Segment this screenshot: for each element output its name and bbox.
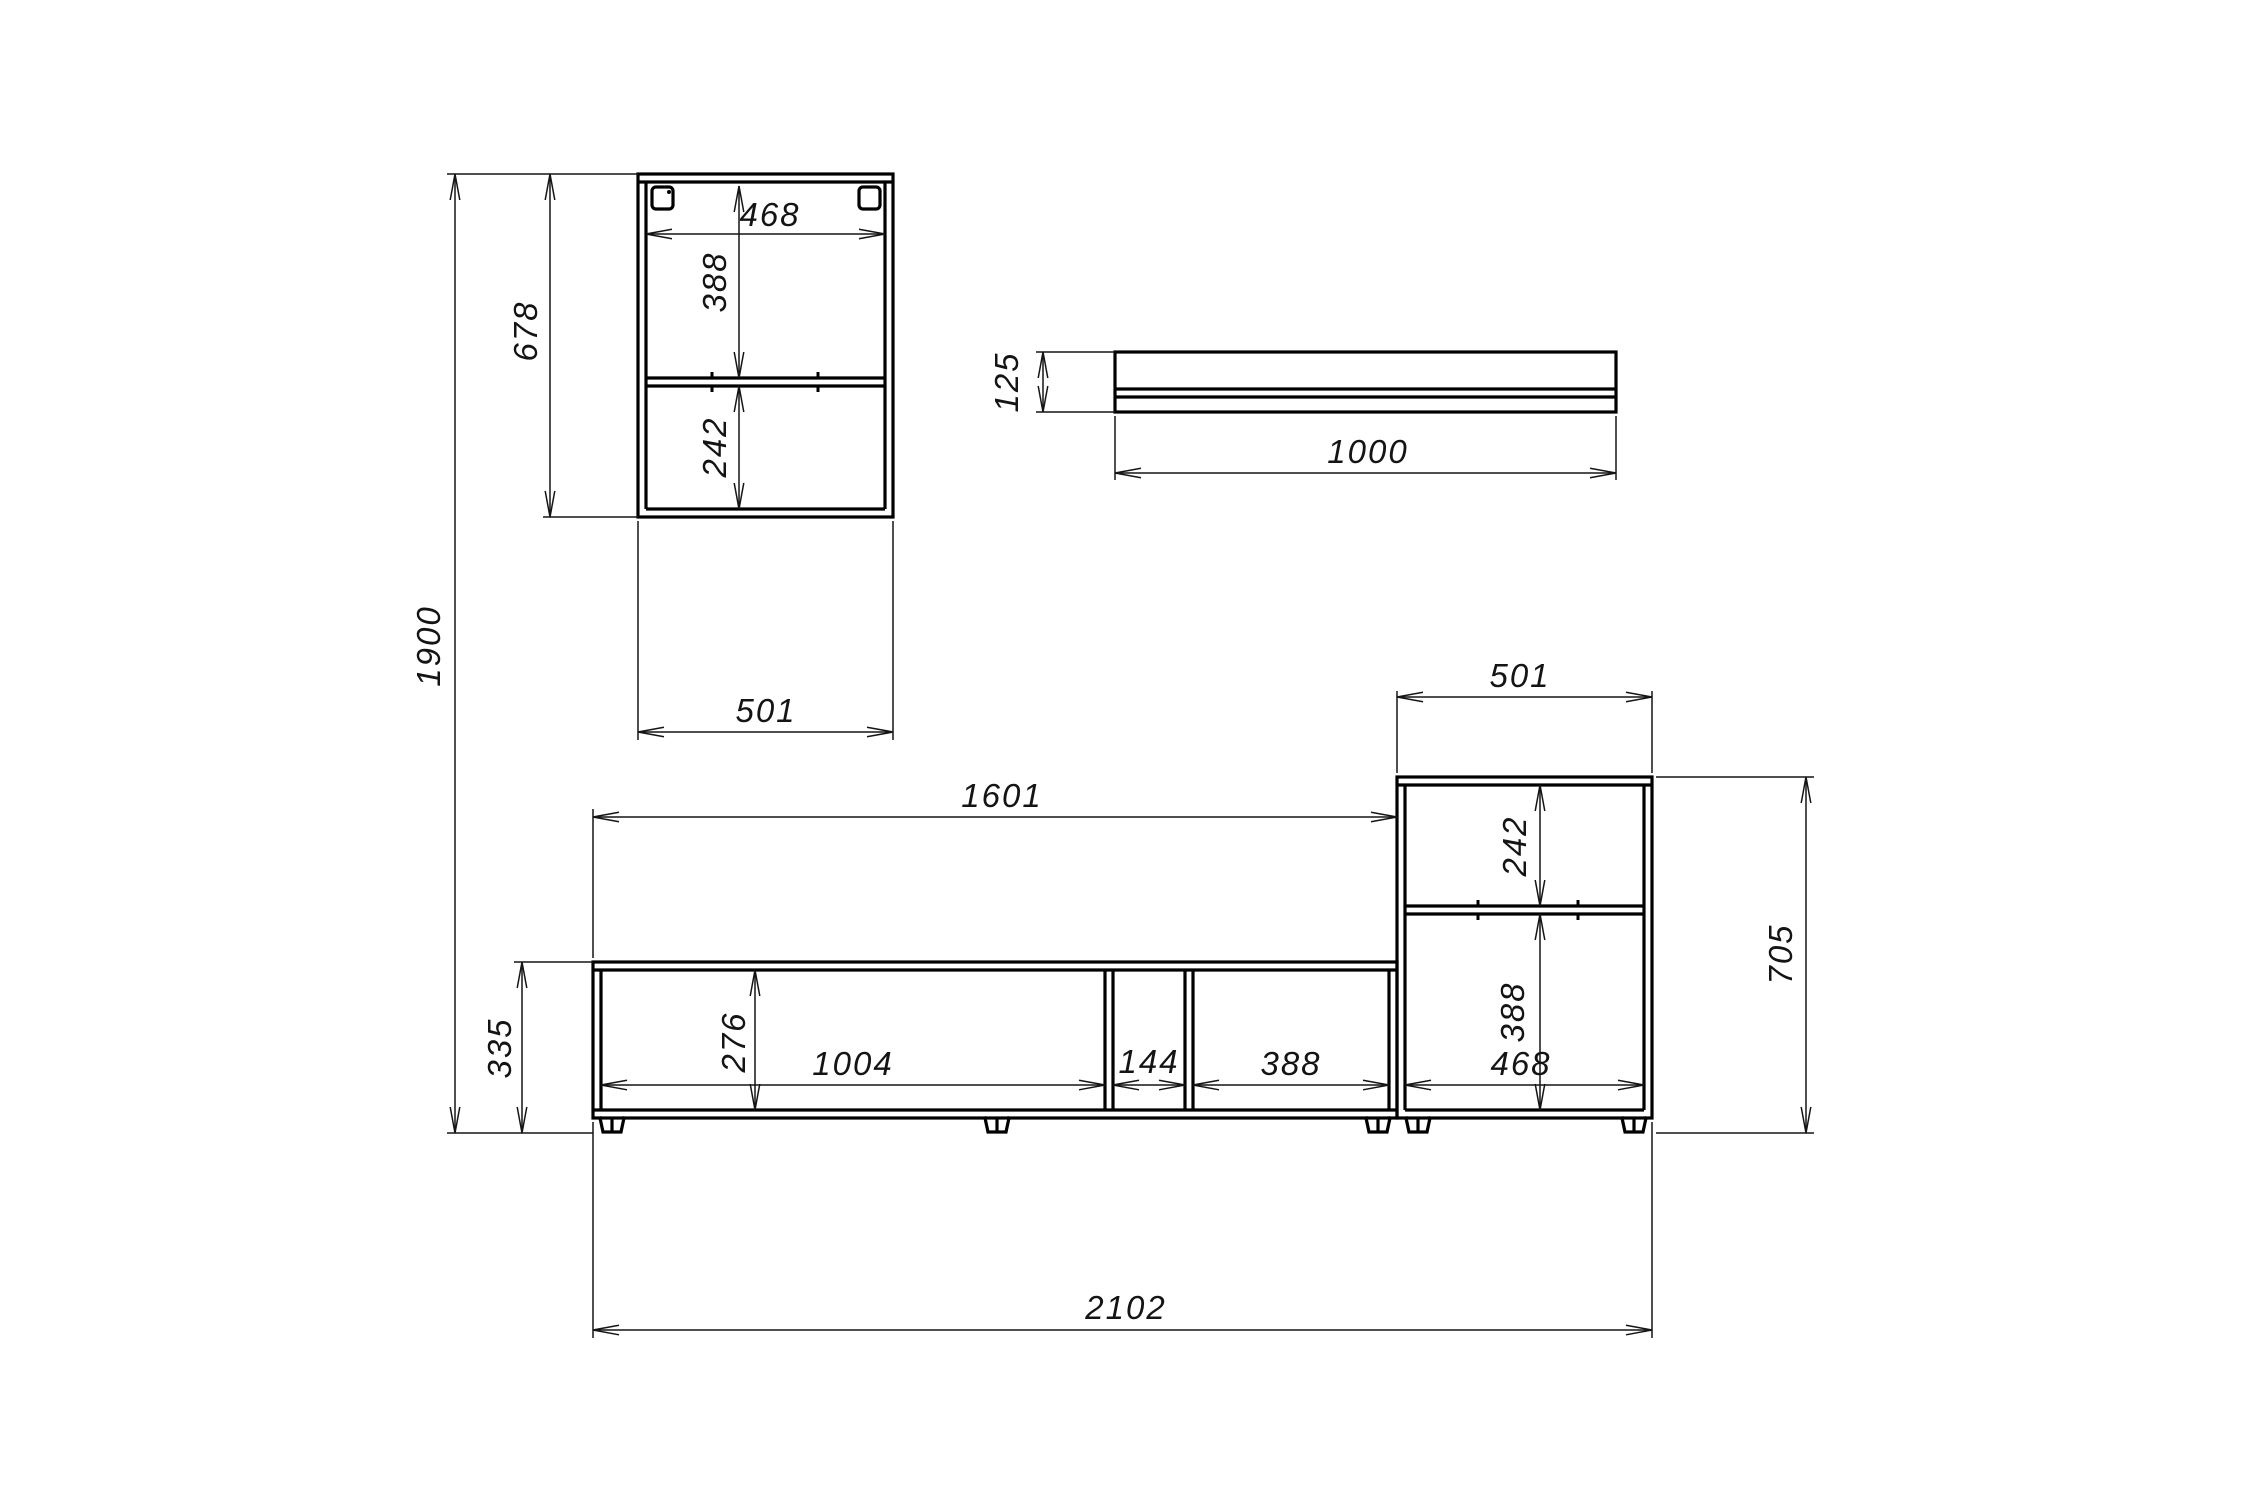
- dim-label-wall-cabinet-width: 501: [735, 692, 796, 729]
- extension-lines: [447, 174, 1814, 1338]
- dim-label-bench-inner-height: 276: [715, 1011, 752, 1073]
- dim-label-bench-compartment-middle: 144: [1118, 1043, 1179, 1080]
- dim-label-wall-cabinet-height: 678: [507, 300, 544, 361]
- wall-shelf: [1115, 352, 1616, 412]
- dim-label-bench-height: 335: [481, 1017, 518, 1078]
- dimension-lines: [450, 174, 1811, 1335]
- dim-label-wall-shelf-length: 1000: [1327, 433, 1408, 470]
- wall-shelf-outline: [1115, 352, 1616, 412]
- dim-label-side-cabinet-inner-width: 468: [1490, 1045, 1551, 1082]
- dim-label-total-length: 2102: [1084, 1289, 1166, 1326]
- hanger-bracket-right: [859, 187, 880, 209]
- dim-label-wall-shelf-height: 125: [988, 351, 1025, 412]
- dim-label-side-cabinet-width: 501: [1489, 657, 1550, 694]
- dim-label-total-height: 1900: [410, 605, 447, 686]
- dim-label-side-cabinet-height: 705: [1762, 923, 1799, 984]
- dim-label-wall-cabinet-upper-compartment: 388: [696, 251, 733, 312]
- hanger-bracket-left-hole: [667, 190, 671, 194]
- dimension-labels: 468 388 242 678 1900 501 125 1000 1601 5…: [410, 196, 1799, 1326]
- dim-label-wall-cabinet-lower-compartment: 242: [696, 416, 733, 478]
- drawing-svg: 468 388 242 678 1900 501 125 1000 1601 5…: [0, 0, 2250, 1500]
- dim-label-bench-compartment-right: 388: [1260, 1045, 1321, 1082]
- dim-label-bench-compartment-left: 1004: [812, 1045, 893, 1082]
- tv-bench-outline: [593, 962, 1397, 1118]
- dim-label-side-cabinet-lower-compartment: 388: [1494, 981, 1531, 1042]
- dim-label-bench-length: 1601: [961, 777, 1042, 814]
- dim-label-wall-cabinet-inner-width: 468: [739, 196, 800, 233]
- furniture-dimension-drawing: 468 388 242 678 1900 501 125 1000 1601 5…: [0, 0, 2250, 1500]
- dim-label-side-cabinet-upper-compartment: 242: [1496, 815, 1533, 877]
